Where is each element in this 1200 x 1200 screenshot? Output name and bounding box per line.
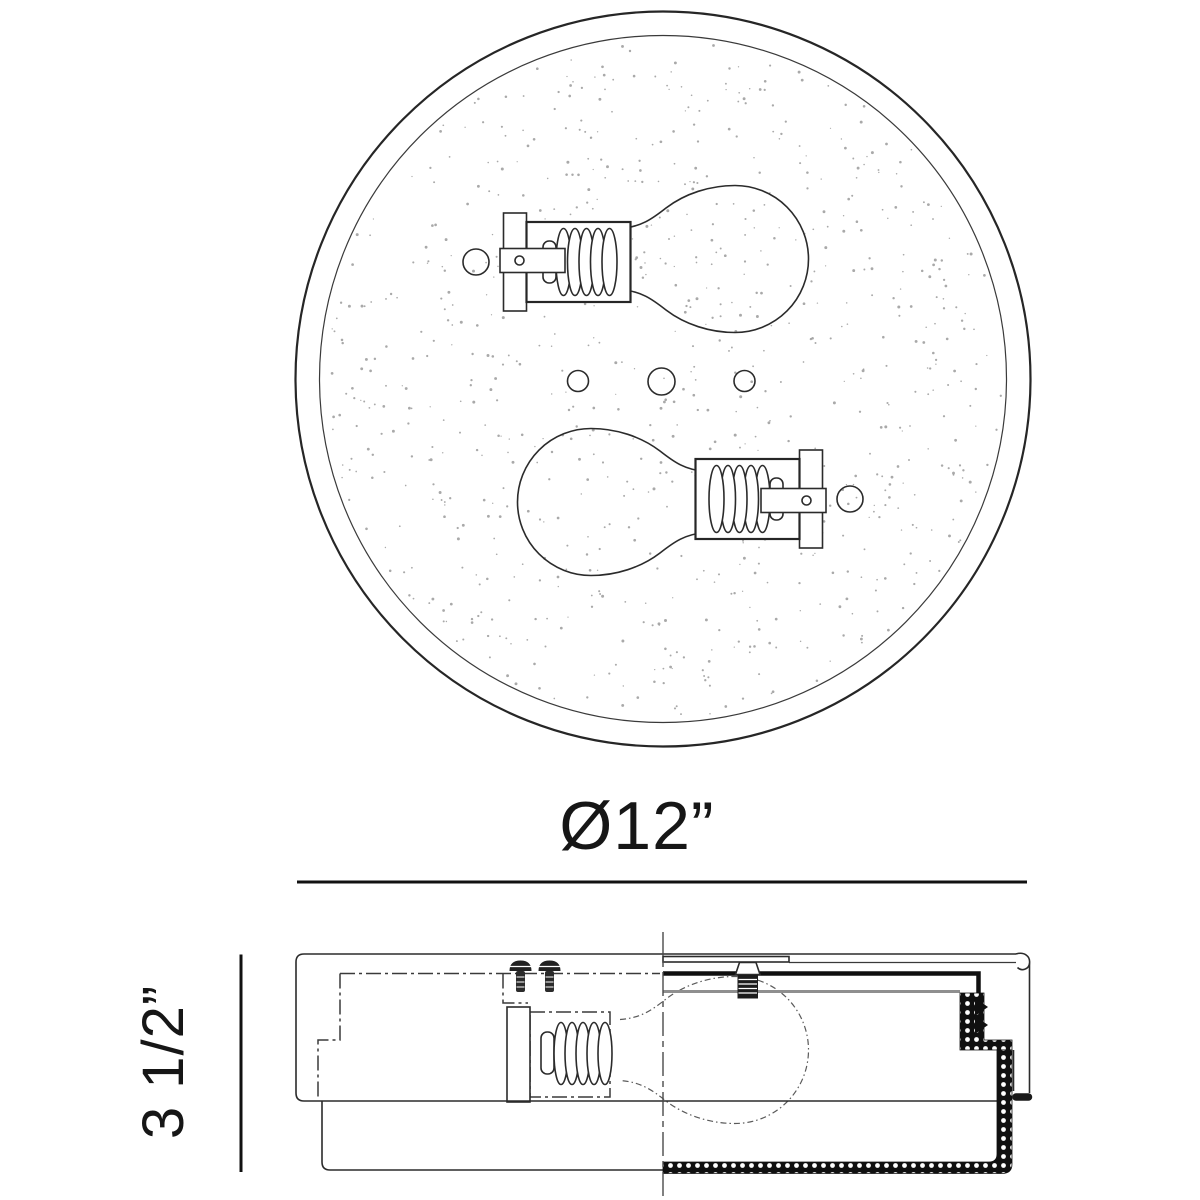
hex-nut — [736, 963, 761, 975]
diameter-label: Ø12” — [559, 788, 714, 864]
mounting-plate — [663, 957, 789, 963]
height-label: 3 1/2” — [131, 985, 196, 1139]
socket-bracket-side — [507, 1007, 530, 1102]
mounting-tab — [500, 249, 565, 273]
socket-contact-side — [541, 1032, 554, 1074]
drawing-canvas: Ø12” — [0, 0, 1200, 1200]
threaded-nipple — [738, 975, 759, 999]
technical-drawing-page: Ø12” — [0, 0, 1200, 1200]
